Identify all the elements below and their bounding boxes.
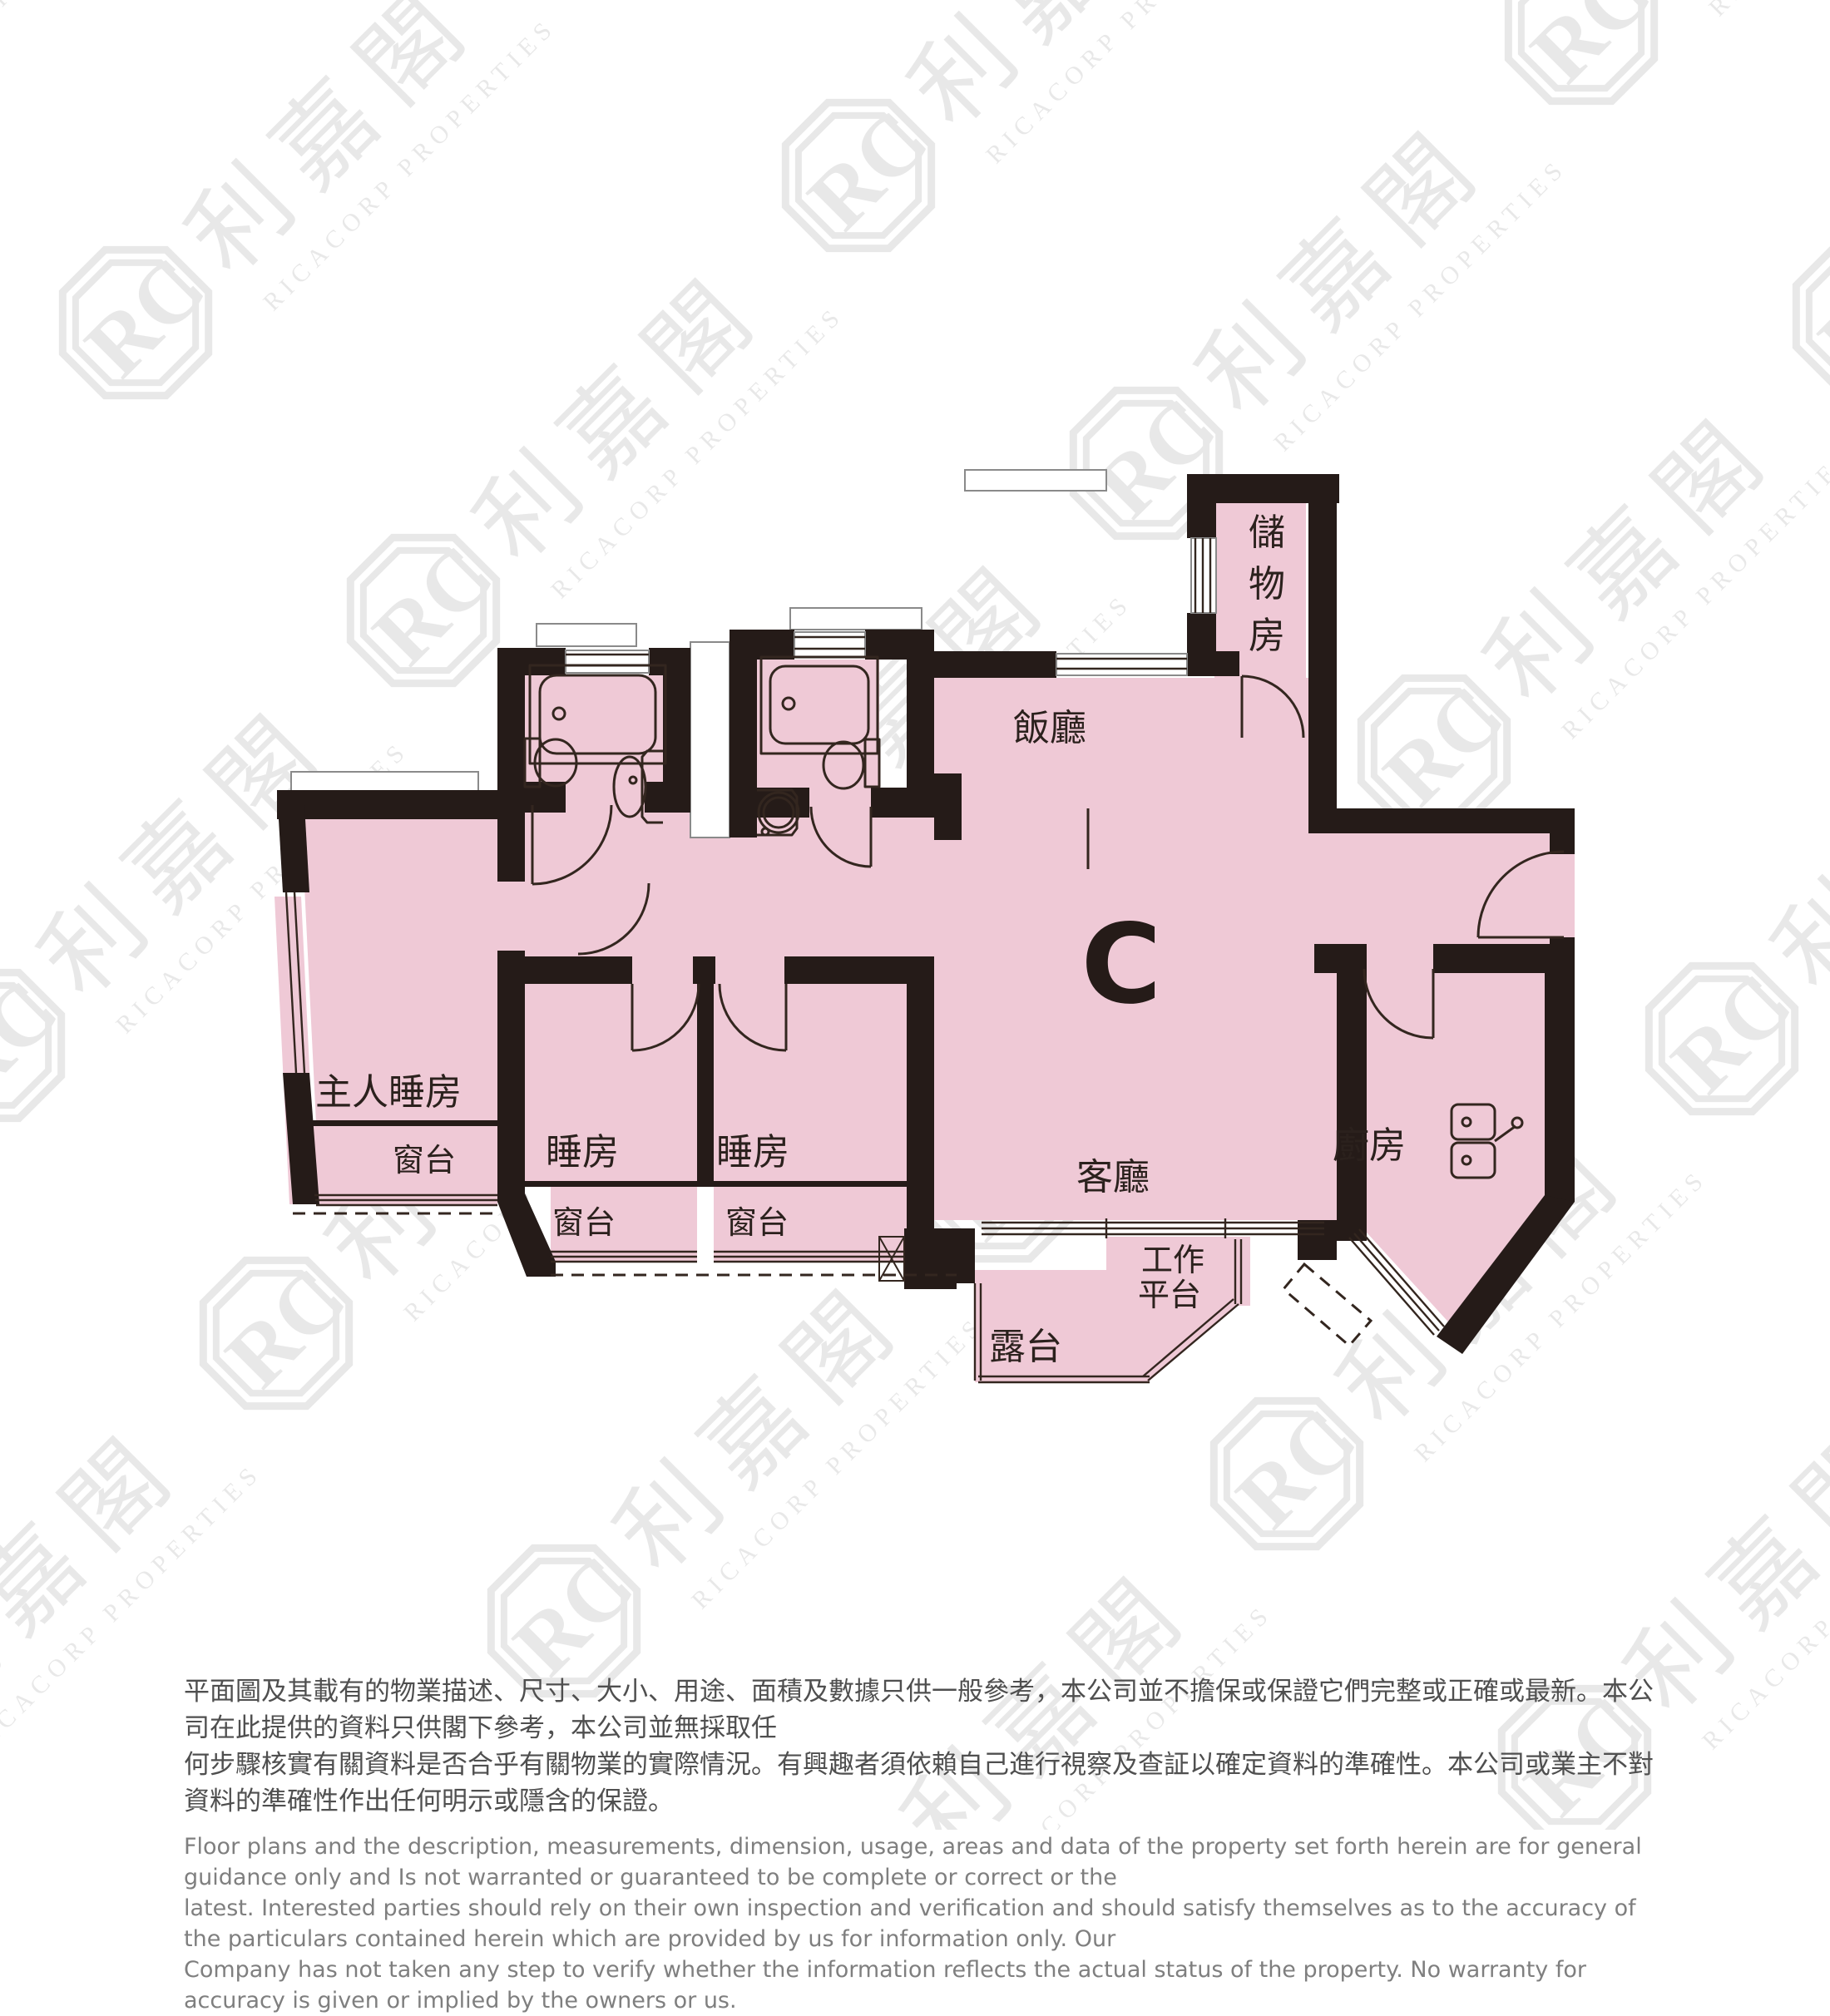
label-bedroom-1: 睡房 [546, 1131, 619, 1174]
label-bedroom1-bay-window: 窗台 [552, 1204, 616, 1241]
label-storage-3: 房 [1249, 615, 1285, 657]
disclaimer-en-line2: latest. Interested parties should rely o… [184, 1893, 1660, 1954]
label-living-room: 客廳 [1076, 1156, 1150, 1198]
disclaimer-block: 平面圖及其載有的物業描述、尺寸、大小、用途、面積及數據只供一般參考，本公司並不擔… [184, 1673, 1660, 2016]
label-bedroom-2: 睡房 [716, 1131, 789, 1174]
label-master-bay-window: 窗台 [393, 1142, 456, 1178]
disclaimer-zh-line2: 何步驟核實有關資料是否合乎有關物業的實際情況。有興趣者須依賴自己進行視察及查証以… [184, 1747, 1660, 1820]
label-bedroom2-bay-window: 窗台 [725, 1204, 789, 1241]
label-balcony: 露台 [989, 1326, 1062, 1368]
label-storage-1: 儲 [1249, 511, 1285, 554]
unit-letter: C [1081, 901, 1162, 1029]
label-master-bedroom: 主人睡房 [315, 1071, 462, 1114]
floor-plan-svg: RC 利嘉閣 RICACORP PROPERTIES [0, 0, 1830, 1830]
label-utility-platform-1: 工作 [1141, 1242, 1204, 1278]
label-dining-room: 飯廳 [1013, 707, 1086, 749]
disclaimer-en-line1: Floor plans and the description, measure… [184, 1831, 1660, 1893]
disclaimer-zh-line1: 平面圖及其載有的物業描述、尺寸、大小、用途、面積及數據只供一般參考，本公司並不擔… [184, 1673, 1660, 1747]
label-kitchen: 廚房 [1333, 1124, 1406, 1167]
label-utility-platform-2: 平台 [1138, 1277, 1201, 1313]
disclaimer-en-line3: Company has not taken any step to verify… [184, 1954, 1660, 2016]
label-storage-2: 物 [1249, 563, 1285, 605]
